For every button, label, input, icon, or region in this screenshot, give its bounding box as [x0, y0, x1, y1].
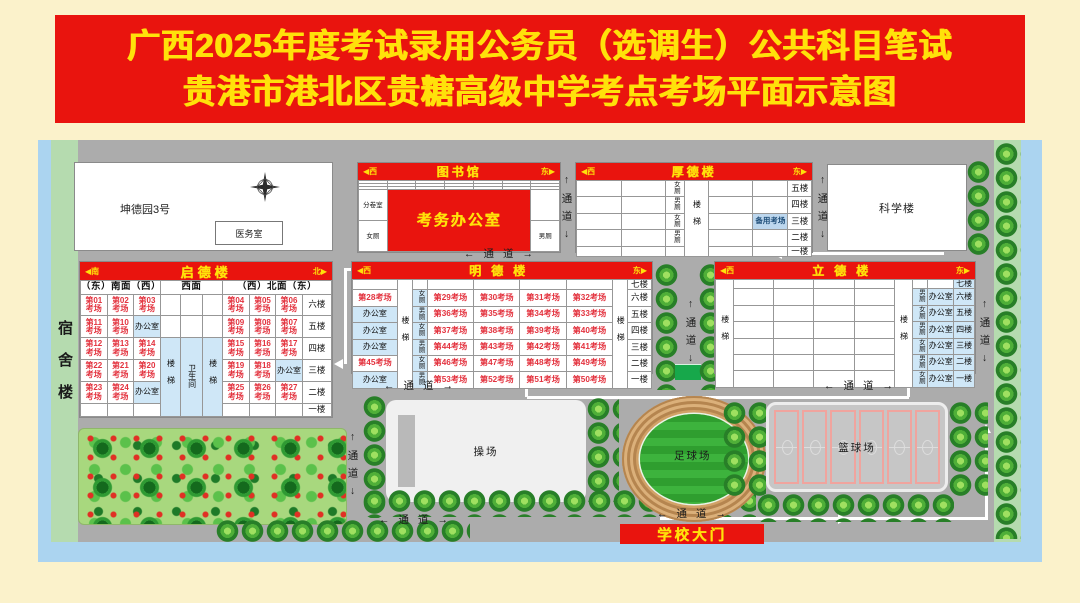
passage-horizontal: ←通道→	[368, 378, 478, 393]
basketball-label: 篮球场	[766, 440, 948, 455]
mingde-header: ◀西 明德楼 东▶	[352, 262, 652, 279]
east-arrow-label: 东▶	[633, 265, 647, 276]
qide-grid: （东）南面（西）西面（西）北面（东）第01 考场第02 考场第03 考场第04 …	[80, 280, 332, 417]
passage-horizontal: ←通道→	[626, 506, 766, 521]
passage-vertical: ↑通道↓	[559, 170, 575, 250]
path-line	[344, 268, 347, 364]
qide-header: ◀南 启德楼 北▶	[80, 262, 332, 280]
clinic-room: 医务室	[215, 221, 283, 245]
tree-row	[586, 398, 619, 502]
building-science: 科学楼	[828, 165, 966, 250]
path-arrow-left	[334, 359, 343, 369]
passage-vertical: ↑通道↓	[344, 430, 362, 504]
tree-row	[698, 264, 715, 390]
tree-row	[722, 402, 766, 496]
exam-site-map-poster: { "title": { "line1": "广西2025年度考试录用公务员（选…	[0, 0, 1080, 603]
houde-name: 厚德楼	[671, 163, 716, 180]
path-line	[527, 396, 909, 399]
west-arrow-label: ◀西	[720, 265, 734, 276]
passage-horizontal: ←通道→	[368, 512, 468, 527]
passage-horizontal: ←通道→	[438, 246, 568, 261]
compass-icon	[247, 169, 283, 205]
kundeyuan-label: 坤德园3号	[120, 201, 170, 217]
library-header: ◀西 图书馆 东▶	[358, 163, 560, 180]
building-mingde: ◀西 明德楼 东▶ 楼梯楼梯七楼第28考场女厕第29考场第30考场第31考场第3…	[352, 262, 652, 373]
dormitory-label: 宿舍楼	[51, 288, 78, 448]
tree-row	[948, 402, 988, 496]
building-qide: ◀南 启德楼 北▶ （东）南面（西）西面（西）北面（东）第01 考场第02 考场…	[80, 262, 332, 417]
road-left	[38, 140, 51, 562]
library-grid: 分卷室考务办公室女厕男厕	[358, 180, 560, 252]
road-right	[1021, 140, 1042, 542]
garden	[78, 428, 347, 525]
lide-header: ◀西 立德楼 东▶	[715, 262, 975, 279]
houde-grid: 女厕楼梯五楼男厕四楼女厕备用考场三楼男厕二楼一楼	[576, 180, 812, 252]
houde-header: ◀西 厚德楼 东▶	[576, 163, 812, 180]
qide-name: 启德楼	[180, 262, 231, 281]
lide-name: 立德楼	[812, 262, 878, 279]
science-label: 科学楼	[879, 200, 915, 216]
campus-map: 宿舍楼 坤德园3号 医务室 ◀西 图书馆 东▶ 分卷室考务办公室女厕男厕 ↑通道…	[38, 140, 1042, 562]
title-line-1: 广西2025年度考试录用公务员（选调生）公共科目笔试	[127, 23, 952, 69]
building-houde: ◀西 厚德楼 东▶ 女厕楼梯五楼男厕四楼女厕备用考场三楼男厕二楼一楼	[576, 163, 812, 252]
school-gate-label: 学校大门	[657, 524, 727, 545]
football-label: 足球场	[674, 448, 712, 463]
building-kundeyuan: 坤德园3号 医务室	[75, 163, 332, 250]
south-arrow-label: ◀南	[85, 266, 99, 277]
lide-grid: 楼梯楼梯七楼男厕办公室六楼女厕办公室五楼男厕办公室四楼女厕办公室三楼男厕办公室二…	[715, 279, 975, 373]
passage-vertical: ↑通道↓	[976, 296, 994, 372]
north-arrow-label: 北▶	[313, 266, 327, 277]
playground-label: 操场	[386, 444, 586, 459]
mingde-name: 明德楼	[469, 262, 535, 279]
east-arrow-label: 东▶	[541, 166, 555, 177]
mingde-grid: 楼梯楼梯七楼第28考场女厕第29考场第30考场第31考场第32考场六楼办公室男厕…	[352, 279, 652, 373]
school-gate: 学校大门	[620, 524, 764, 544]
east-arrow-label: 东▶	[793, 166, 807, 177]
east-arrow-label: 东▶	[956, 265, 970, 276]
playground: 操场	[386, 400, 586, 502]
building-lide: ◀西 立德楼 东▶ 楼梯楼梯七楼男厕办公室六楼女厕办公室五楼男厕办公室四楼女厕办…	[715, 262, 975, 373]
road-bottom	[38, 542, 1042, 562]
tree-row	[756, 494, 954, 522]
title-line-2: 贵港市港北区贵糖高级中学考点考场平面示意图	[183, 69, 897, 115]
passage-horizontal: ←通道→	[808, 378, 918, 393]
west-arrow-label: ◀西	[581, 166, 595, 177]
library-name: 图书馆	[436, 163, 481, 180]
west-arrow-label: ◀西	[363, 166, 377, 177]
tree-row	[966, 161, 992, 257]
building-library: ◀西 图书馆 东▶ 分卷室考务办公室女厕男厕	[358, 163, 560, 252]
tree-row-right-strip	[994, 143, 1021, 539]
title-banner: 广西2025年度考试录用公务员（选调生）公共科目笔试 贵港市港北区贵糖高级中学考…	[55, 15, 1025, 123]
west-arrow-label: ◀西	[357, 265, 371, 276]
